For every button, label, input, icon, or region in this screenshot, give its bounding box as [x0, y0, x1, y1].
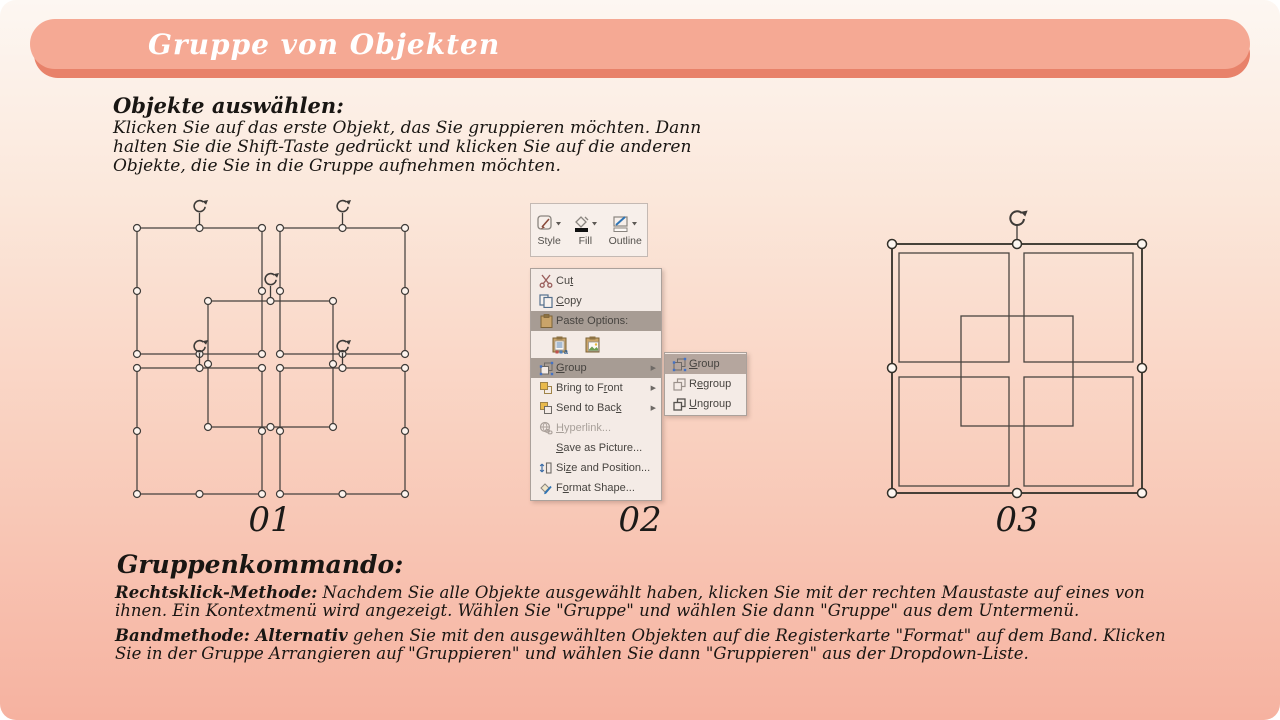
section1-line-2: halten Sie die Shift-Taste gedrückt und …	[113, 138, 701, 157]
paste-keep-formatting-icon: a	[551, 335, 571, 355]
scissors-icon	[536, 274, 556, 288]
ungroup-icon	[669, 397, 689, 412]
section1-line-3: Objekte, die Sie in die Gruppe aufnehmen…	[113, 157, 701, 176]
paragraph-lead: Bandmethode: Alternativ	[115, 626, 348, 645]
paste-as-picture-button[interactable]	[583, 334, 605, 356]
rotate-handle-icon	[1010, 211, 1027, 226]
submenu-arrow-icon: ▶	[651, 364, 656, 372]
outline-icon	[612, 214, 638, 234]
group-icon	[536, 361, 556, 376]
figure-grouped-squares	[880, 208, 1160, 508]
regroup-icon	[669, 377, 689, 392]
paste-as-picture-icon	[584, 335, 604, 355]
fill-button[interactable]: Fill	[572, 214, 598, 247]
submenu-arrow-icon: ▶	[651, 384, 656, 392]
section1-body: Klicken Sie auf das erste Objekt, das Si…	[113, 119, 701, 176]
paragraph-lead: Rechtsklick-Methode:	[115, 583, 317, 602]
menu-item-size-and-position[interactable]: Size and Position...	[531, 458, 661, 478]
hyperlink-icon	[536, 421, 556, 435]
figure1-label: 01	[210, 500, 330, 540]
submenu-arrow-icon: ▶	[651, 404, 656, 412]
send-to-back-icon	[536, 401, 556, 415]
menu-item-cut[interactable]: Cut	[531, 271, 661, 291]
title-banner: Gruppe von Objekten	[30, 19, 1250, 69]
submenu-item-ungroup[interactable]: Ungroup	[665, 394, 746, 414]
fill-icon	[572, 214, 598, 234]
menu-item-send-to-back[interactable]: Send to Back ▶	[531, 398, 661, 418]
square-top-right	[277, 200, 409, 358]
square-top-left	[134, 200, 266, 358]
mini-format-toolbar: Style Fill Outline	[530, 203, 648, 257]
square-center	[205, 273, 337, 431]
menu-item-bring-to-front[interactable]: Bring to Front ▶	[531, 378, 661, 398]
menu-item-copy[interactable]: Copy	[531, 291, 661, 311]
style-label: Style	[537, 235, 560, 247]
outline-label: Outline	[609, 235, 642, 247]
group-submenu: Group Regroup Ungroup	[664, 352, 747, 416]
paragraph-rightclick-method: Rechtsklick-Methode: Nachdem Sie alle Ob…	[115, 584, 1175, 619]
bring-to-front-icon	[536, 381, 556, 395]
square-bottom-right	[277, 340, 409, 498]
outline-button[interactable]: Outline	[609, 214, 642, 247]
style-button[interactable]: Style	[536, 214, 562, 247]
menu-item-format-shape[interactable]: Format Shape...	[531, 478, 661, 498]
figure-ungrouped-squares	[118, 198, 418, 508]
section2-heading: Gruppenkommando:	[117, 550, 403, 579]
page-title: Gruppe von Objekten	[148, 28, 500, 61]
size-position-icon	[536, 461, 556, 475]
menu-item-hyperlink[interactable]: Hyperlink...	[531, 418, 661, 438]
clipboard-icon	[536, 314, 556, 328]
menu-item-paste-options[interactable]: Paste Options:	[531, 311, 661, 331]
figure3-label: 03	[957, 500, 1077, 540]
menu-item-group[interactable]: Group ▶	[531, 358, 661, 378]
style-icon	[536, 214, 562, 234]
section1-line-1: Klicken Sie auf das erste Objekt, das Si…	[113, 119, 701, 138]
format-shape-icon	[536, 481, 556, 495]
figure2-label: 02	[580, 500, 700, 540]
context-menu: Cut Copy Paste Options:	[530, 268, 662, 501]
paste-keep-formatting-button[interactable]: a	[550, 334, 572, 356]
paragraph-ribbon-method: Bandmethode: Alternativ gehen Sie mit de…	[115, 627, 1175, 662]
fill-label: Fill	[579, 235, 592, 247]
slide: Gruppe von Objekten Objekte auswählen: K…	[0, 0, 1280, 720]
svg-text:a: a	[564, 349, 568, 355]
group-icon	[669, 357, 689, 372]
group-selection-box	[892, 244, 1142, 493]
square-bottom-left	[134, 340, 266, 498]
section1-heading: Objekte auswählen:	[113, 93, 344, 118]
submenu-item-group[interactable]: Group	[665, 354, 746, 374]
paste-options-row: a	[531, 331, 661, 358]
copy-icon	[536, 294, 556, 308]
section2-body: Rechtsklick-Methode: Nachdem Sie alle Ob…	[115, 584, 1175, 670]
menu-item-save-as-picture[interactable]: Save as Picture...	[531, 438, 661, 458]
submenu-item-regroup[interactable]: Regroup	[665, 374, 746, 394]
